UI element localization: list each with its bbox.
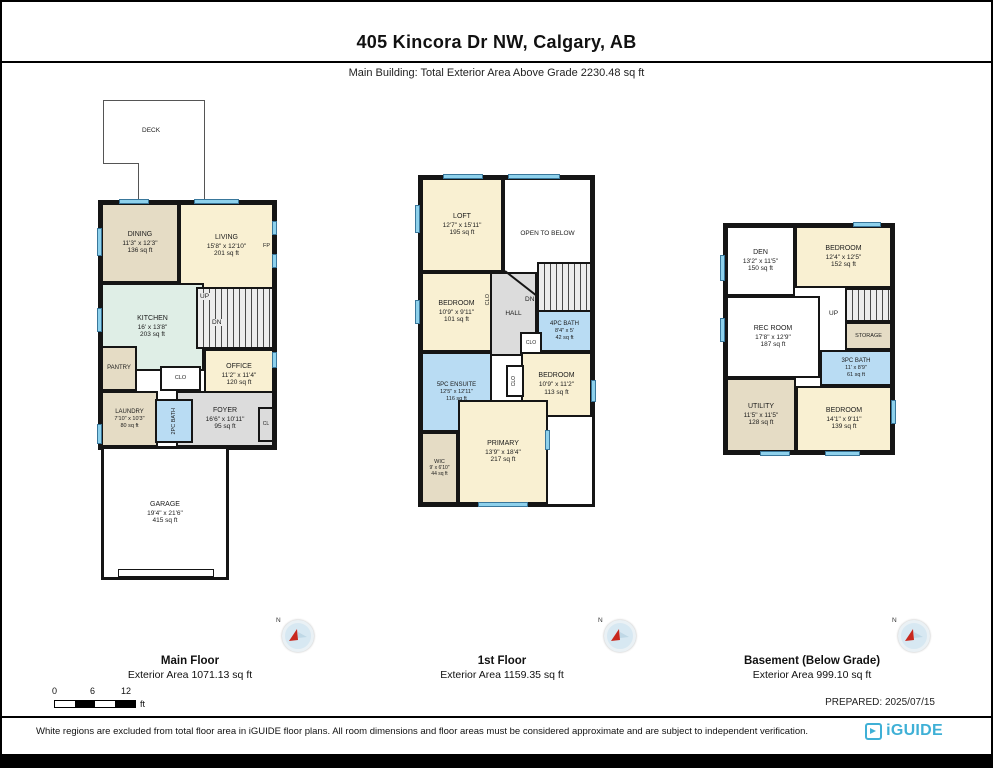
- compass-needle-icon: [607, 623, 633, 649]
- window-marker: [415, 205, 420, 233]
- room-bedroom-1: BEDROOM 12'4" x 12'5" 152 sq ft: [795, 226, 892, 288]
- room-pantry: PANTRY: [101, 346, 137, 391]
- garage-plan: GARAGE 19'4" x 21'6" 415 sq ft: [101, 446, 229, 580]
- room-closet: CLO: [520, 332, 542, 354]
- compass-rose: N: [282, 620, 314, 652]
- window-marker: [891, 400, 896, 424]
- disclaimer-text: White regions are excluded from total fl…: [36, 726, 826, 737]
- basement-stairs: [845, 288, 892, 322]
- basement-caption: Basement (Below Grade) Exterior Area 999…: [712, 655, 912, 681]
- scale-bar: [54, 700, 136, 708]
- window-marker: [720, 318, 725, 342]
- scale-0: 0: [52, 686, 57, 696]
- iguide-logo: iGUIDE: [865, 722, 943, 740]
- stairs-up-label: UP: [199, 293, 210, 300]
- first-floor-plan: LOFT 12'7" x 15'11" 195 sq ft OPEN TO BE…: [418, 175, 595, 507]
- first-floor-stairs: [537, 262, 592, 312]
- main-floor-caption: Main Floor Exterior Area 1071.13 sq ft: [90, 655, 290, 681]
- fireplace-label: FP: [263, 243, 270, 249]
- deck-step-outline: [138, 163, 205, 203]
- window-marker: [760, 451, 790, 456]
- room-3pc-bath: 3PC BATH 11' x 8'9" 61 sq ft: [820, 350, 892, 386]
- compass-rose: N: [898, 620, 930, 652]
- scale-6: 6: [90, 686, 95, 696]
- page-subtitle: Main Building: Total Exterior Area Above…: [0, 67, 993, 79]
- north-label: N: [276, 617, 281, 624]
- window-marker: [97, 424, 102, 444]
- room-rec-room: REC ROOM 17'8" x 12'9" 187 sq ft: [726, 296, 820, 378]
- room-bedroom-2: BEDROOM 14'1" x 9'11" 139 sq ft: [796, 386, 892, 452]
- stairs-up-label: UP: [829, 310, 838, 317]
- room-primary: PRIMARY 13'9" x 18'4" 217 sq ft: [458, 400, 548, 504]
- deck-outline: DECK: [103, 100, 205, 164]
- stairs-dn-label: DN: [525, 296, 534, 303]
- compass-needle-icon: [285, 623, 311, 649]
- window-marker: [97, 308, 102, 332]
- room-closet: CLO: [506, 365, 524, 397]
- room-garage: GARAGE 19'4" x 21'6" 415 sq ft: [104, 449, 226, 577]
- scale-12: 12: [121, 686, 131, 696]
- window-marker: [97, 228, 102, 256]
- floorplan-sheet: 405 Kincora Dr NW, Calgary, AB Main Buil…: [0, 0, 993, 768]
- room-living: LIVING 15'8" x 12'10" 201 sq ft: [179, 203, 274, 289]
- stairs-dn-label: DN: [211, 319, 222, 326]
- footer-divider: [0, 716, 993, 718]
- bottom-bar: [0, 754, 993, 768]
- window-marker: [272, 352, 277, 368]
- window-marker: [478, 502, 528, 507]
- 2pc-bath-label: 2PC BATH: [171, 408, 177, 435]
- window-marker: [443, 174, 483, 179]
- window-marker: [272, 254, 277, 268]
- window-marker: [194, 199, 239, 204]
- iguide-logo-icon: [865, 723, 882, 740]
- window-marker: [119, 199, 149, 204]
- deck-label: DECK: [142, 127, 160, 134]
- room-closet: CLO: [160, 366, 201, 391]
- window-marker: [720, 255, 725, 281]
- page-title: 405 Kincora Dr NW, Calgary, AB: [0, 32, 993, 53]
- garage-door: [118, 569, 214, 577]
- header-divider: [2, 61, 991, 63]
- room-utility: UTILITY 11'5" x 11'5" 128 sq ft: [726, 378, 796, 452]
- room-bedroom-1: BEDROOM 10'9" x 9'11" 101 sq ft: [421, 272, 492, 352]
- compass-rose: N: [604, 620, 636, 652]
- window-marker: [272, 221, 277, 235]
- window-marker: [825, 451, 860, 456]
- room-den: DEN 13'2" x 11'5" 150 sq ft: [726, 226, 795, 296]
- basement-plan: DEN 13'2" x 11'5" 150 sq ft BEDROOM 12'4…: [723, 223, 895, 455]
- scale-unit: ft: [140, 699, 145, 709]
- room-4pc-bath: 4PC BATH 8'4" x 5' 42 sq ft: [537, 310, 592, 352]
- room-wic: WIC 9' x 6'10" 44 sq ft: [421, 432, 458, 504]
- window-marker: [545, 430, 550, 450]
- room-loft: LOFT 12'7" x 15'11" 195 sq ft: [421, 178, 503, 272]
- main-floor-plan: DINING 11'3" x 12'3" 136 sq ft LIVING 15…: [98, 200, 277, 450]
- room-laundry: LAUNDRY 7'10" x 10'3" 80 sq ft: [101, 391, 158, 447]
- window-marker: [508, 174, 560, 179]
- room-storage: STORAGE: [845, 322, 892, 350]
- room-2pc-bath: 2PC BATH: [155, 399, 193, 443]
- compass-needle-icon: [901, 623, 927, 649]
- room-dining: DINING 11'3" x 12'3" 136 sq ft: [101, 203, 179, 283]
- closet-label: CLO: [485, 294, 491, 305]
- iguide-logo-text: iGUIDE: [886, 722, 943, 740]
- north-label: N: [892, 617, 897, 624]
- room-cl-closet: CL: [258, 407, 274, 442]
- window-marker: [591, 380, 596, 402]
- prepared-date: PREPARED: 2025/07/15: [825, 697, 935, 708]
- window-marker: [415, 300, 420, 324]
- window-marker: [853, 222, 881, 227]
- north-label: N: [598, 617, 603, 624]
- first-floor-caption: 1st Floor Exterior Area 1159.35 sq ft: [402, 655, 602, 681]
